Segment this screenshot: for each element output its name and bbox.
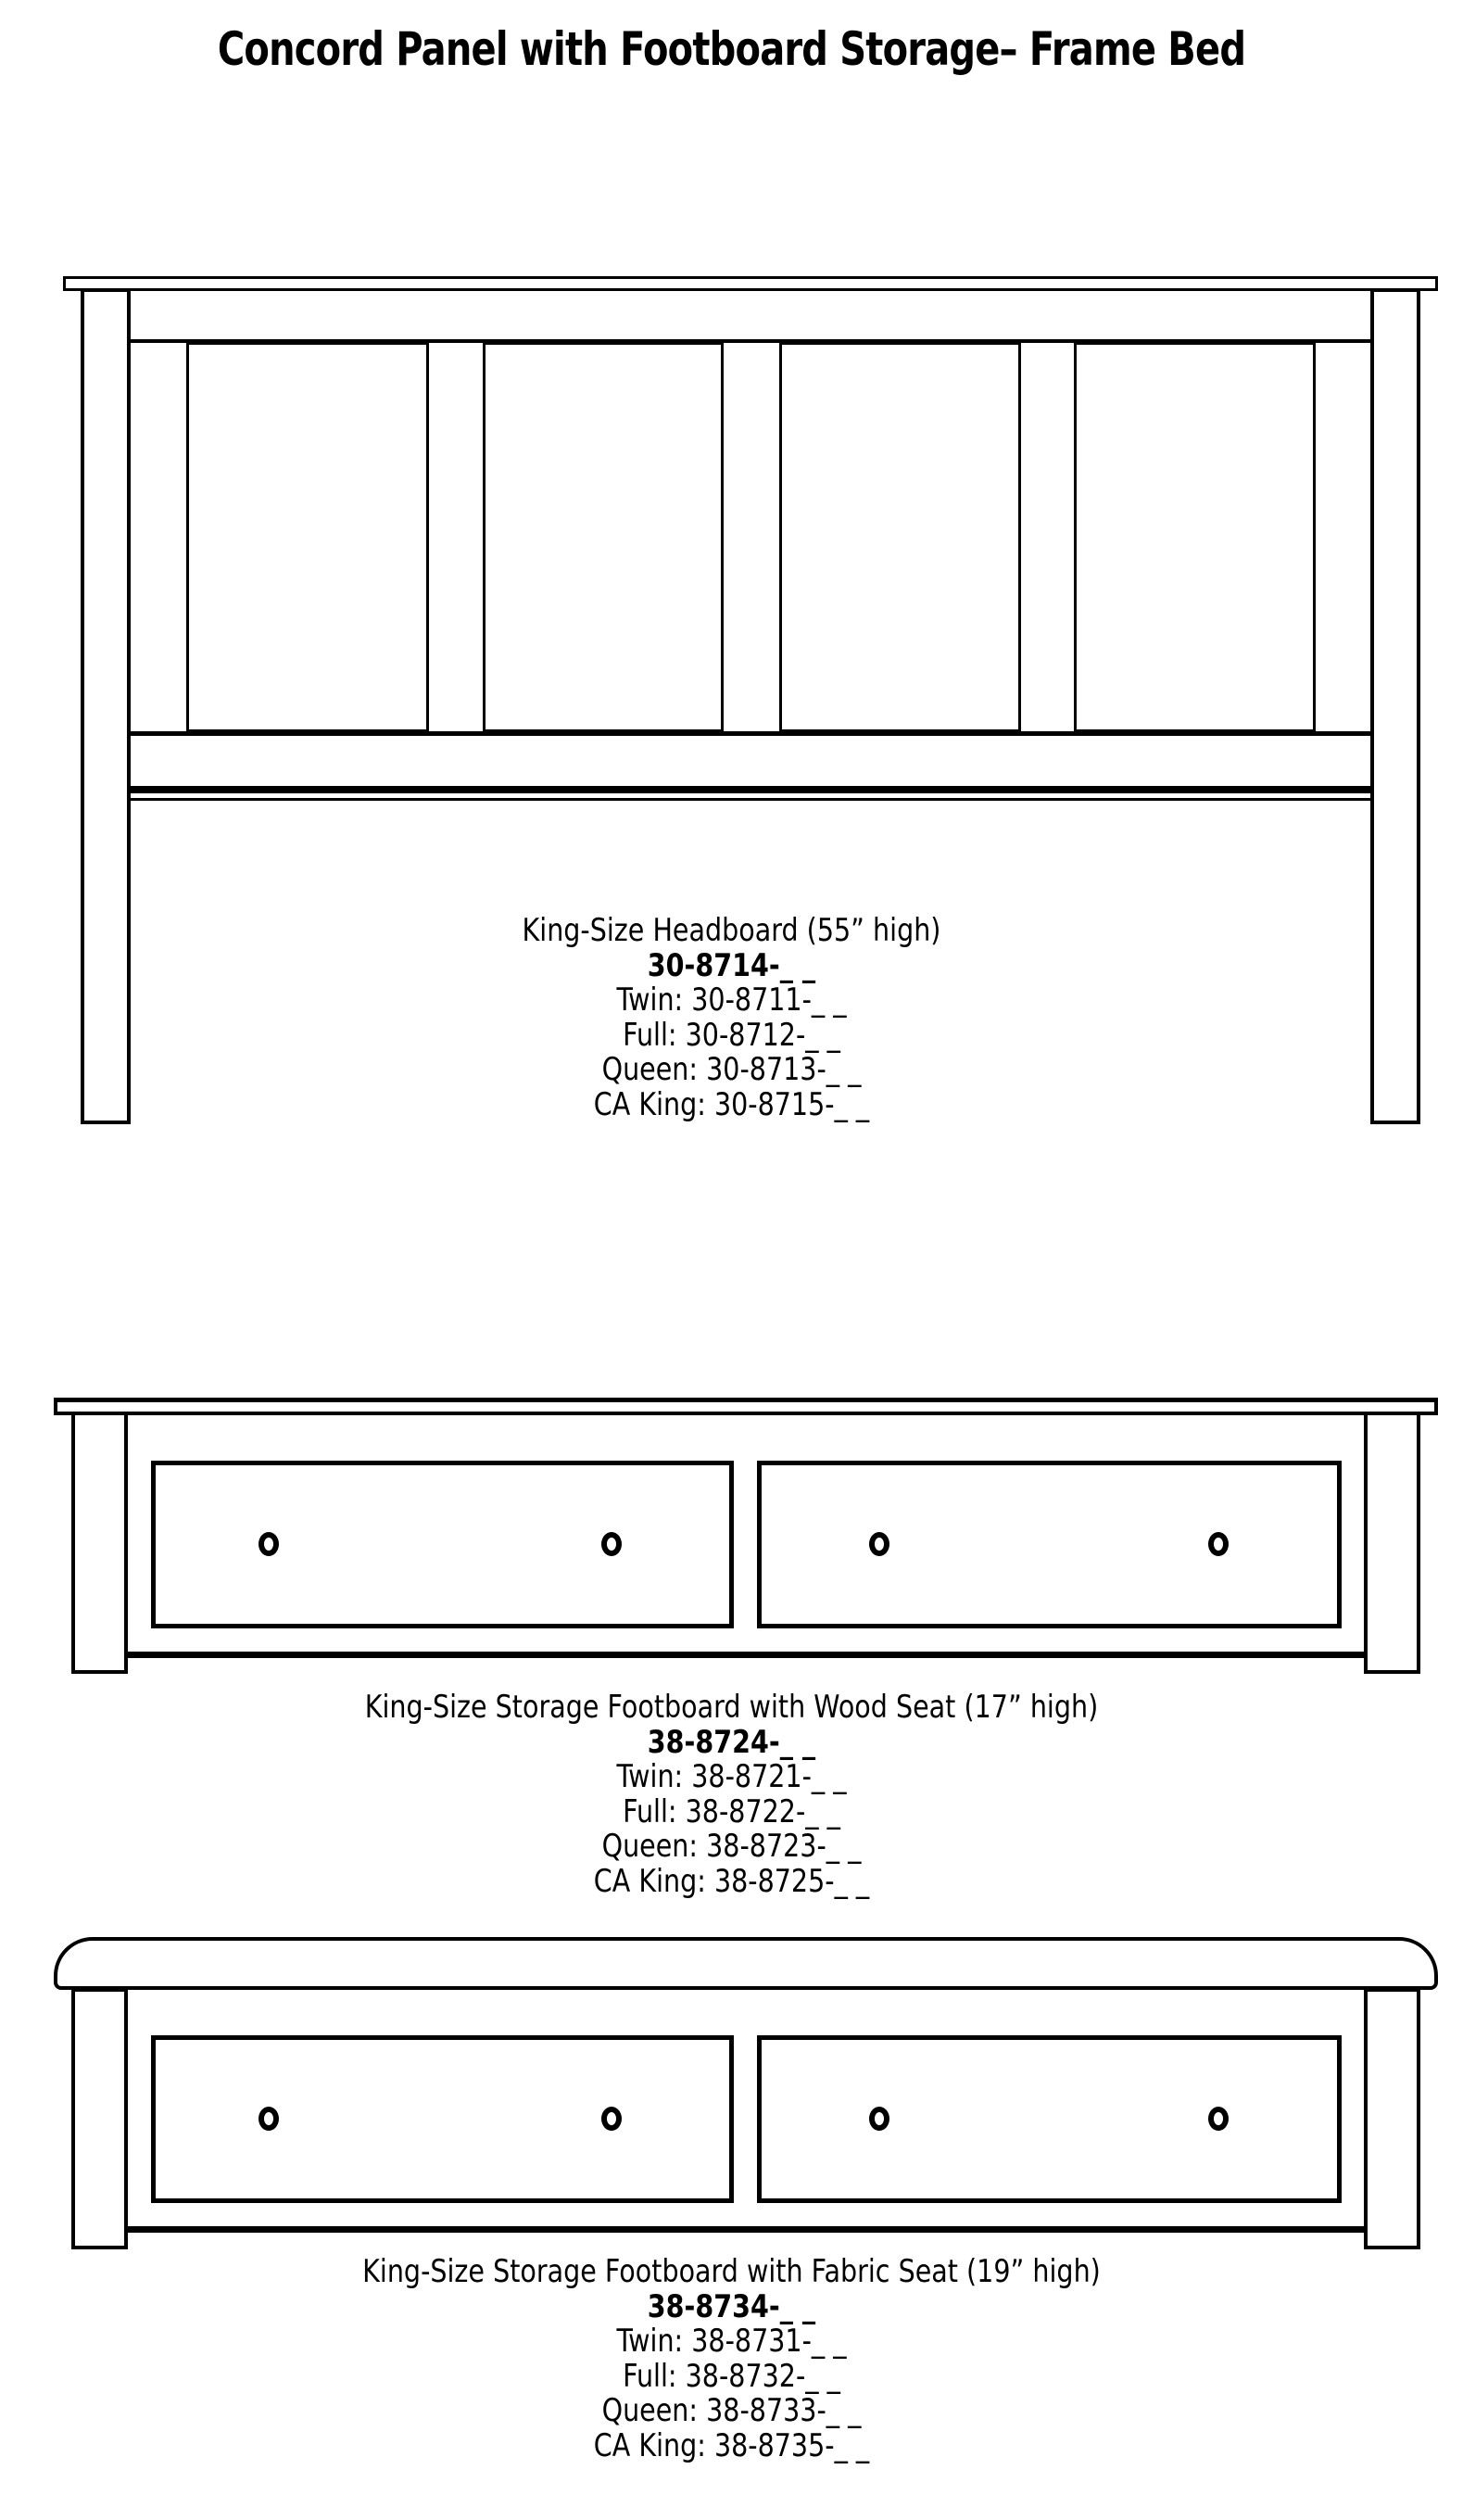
footboard-fabric-cushion [54, 1937, 1438, 1990]
variant-line: Twin: 38-8731-_ _ [117, 2324, 1345, 2360]
variant-label: Full: [623, 2358, 676, 2395]
footboard-wood-drawer-1 [151, 1461, 734, 1628]
drawer-knob [259, 1532, 279, 1556]
variant-code: 38-8725-_ _ [714, 1863, 869, 1900]
variant-label: Full: [623, 1793, 676, 1830]
variant-line: Twin: 30-8711-_ _ [117, 983, 1345, 1019]
variant-code: 38-8735-_ _ [714, 2427, 869, 2464]
headboard-panel-2 [483, 342, 724, 732]
caption-title: King-Size Headboard (55” high) [117, 914, 1345, 949]
headboard-panel-bottom-line [131, 731, 1370, 736]
variant-code: 30-8711-_ _ [691, 981, 846, 1019]
variant-label: Twin: [616, 2323, 683, 2360]
footboard-fabric-right-leg [1364, 1988, 1420, 2249]
variant-line: Queen: 38-8723-_ _ [117, 1830, 1345, 1865]
headboard-caption: King-Size Headboard (55” high) 30-8714-_… [0, 914, 1463, 1122]
variant-label: Full: [623, 1017, 676, 1054]
variant-line: Full: 30-8712-_ _ [117, 1019, 1345, 1054]
page-title: Concord Panel with Footboard Storage– Fr… [146, 22, 1317, 76]
drawer-knob [601, 2107, 622, 2131]
headboard-bottom-rail-thin-line [131, 798, 1370, 801]
footboard-fabric-bottom-rail-line [128, 2226, 1364, 2233]
variant-label: Queen: [602, 2392, 698, 2429]
variant-code: 38-8733-_ _ [706, 2392, 861, 2429]
headboard-panel-1 [186, 342, 429, 732]
variant-line: CA King: 30-8715-_ _ [117, 1088, 1345, 1123]
variant-line: CA King: 38-8735-_ _ [117, 2429, 1345, 2464]
caption-title: King-Size Storage Footboard with Fabric … [117, 2255, 1345, 2290]
variant-code: 30-8713-_ _ [706, 1051, 861, 1088]
variant-code: 30-8712-_ _ [686, 1017, 840, 1054]
variant-code: 30-8715-_ _ [714, 1086, 869, 1123]
footboard-wood-right-leg [1364, 1412, 1420, 1674]
drawer-knob [869, 1532, 889, 1556]
footboard-wood-bottom-rail-line [128, 1652, 1364, 1658]
footboard-fabric-caption: King-Size Storage Footboard with Fabric … [0, 2255, 1463, 2463]
variant-label: CA King: [594, 1086, 706, 1123]
caption-main-code: 38-8734-_ _ [117, 2290, 1345, 2325]
variant-label: CA King: [594, 2427, 706, 2464]
variant-line: Queen: 38-8733-_ _ [117, 2394, 1345, 2429]
variant-line: Full: 38-8722-_ _ [117, 1795, 1345, 1830]
drawer-knob [869, 2107, 889, 2131]
headboard-bottom-rail-line [131, 786, 1370, 793]
variant-label: CA King: [594, 1863, 706, 1900]
footboard-wood-top-cap [54, 1398, 1438, 1415]
footboard-wood-left-leg [71, 1412, 128, 1674]
variant-line: Full: 38-8732-_ _ [117, 2360, 1345, 2395]
variant-code: 38-8723-_ _ [706, 1828, 861, 1865]
variant-code: 38-8721-_ _ [691, 1758, 846, 1795]
caption-main-code: 30-8714-_ _ [117, 949, 1345, 984]
caption-main-code: 38-8724-_ _ [117, 1726, 1345, 1761]
headboard-panel-3 [779, 342, 1021, 732]
variant-code: 38-8722-_ _ [686, 1793, 840, 1830]
footboard-fabric-drawer-2 [757, 2035, 1342, 2203]
footboard-wood-drawer-2 [757, 1461, 1342, 1628]
headboard-top-cap [63, 276, 1438, 291]
variant-label: Twin: [616, 1758, 683, 1795]
catalog-page: Concord Panel with Footboard Storage– Fr… [0, 0, 1463, 2520]
drawer-knob [1208, 2107, 1229, 2131]
variant-line: Twin: 38-8721-_ _ [117, 1760, 1345, 1795]
variant-label: Twin: [616, 981, 683, 1019]
footboard-wood-caption: King-Size Storage Footboard with Wood Se… [0, 1691, 1463, 1899]
drawer-knob [1208, 1532, 1229, 1556]
variant-code: 38-8732-_ _ [686, 2358, 840, 2395]
variant-code: 38-8731-_ _ [691, 2323, 846, 2360]
drawer-knob [601, 1532, 622, 1556]
caption-title: King-Size Storage Footboard with Wood Se… [117, 1691, 1345, 1726]
variant-label: Queen: [602, 1051, 698, 1088]
drawer-knob [259, 2107, 279, 2131]
footboard-fabric-drawer-1 [151, 2035, 734, 2203]
variant-line: Queen: 30-8713-_ _ [117, 1053, 1345, 1088]
variant-line: CA King: 38-8725-_ _ [117, 1865, 1345, 1900]
footboard-fabric-left-leg [71, 1988, 128, 2249]
headboard-panel-4 [1074, 342, 1316, 732]
variant-label: Queen: [602, 1828, 698, 1865]
